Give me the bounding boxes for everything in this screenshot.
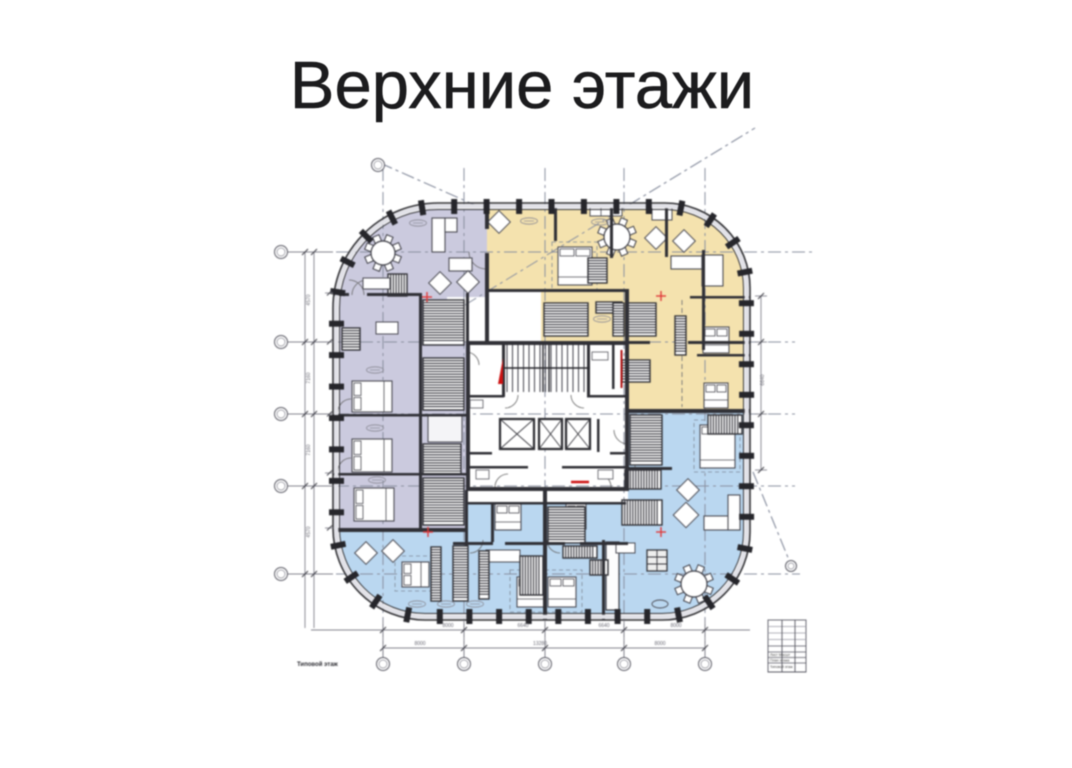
svg-text:8000: 8000 xyxy=(654,641,665,647)
svg-text:6640: 6640 xyxy=(517,623,528,629)
svg-text:4570: 4570 xyxy=(306,526,312,537)
svg-text:6640: 6640 xyxy=(760,374,766,385)
svg-text:7160: 7160 xyxy=(306,372,312,383)
svg-text:7160: 7160 xyxy=(306,444,312,455)
svg-text:Типовой этаж: Типовой этаж xyxy=(297,661,339,668)
svg-text:8000: 8000 xyxy=(414,641,425,647)
svg-text:6640: 6640 xyxy=(598,623,609,629)
svg-text:Типовой этаж: Типовой этаж xyxy=(770,665,793,669)
svg-text:4570: 4570 xyxy=(306,294,312,305)
svg-text:План этажа: План этажа xyxy=(770,659,789,663)
svg-text:8000: 8000 xyxy=(442,623,453,629)
svg-text:Лист Масшт: Лист Масшт xyxy=(770,653,791,657)
svg-text:8000: 8000 xyxy=(670,623,681,629)
svg-text:13280: 13280 xyxy=(533,641,547,647)
